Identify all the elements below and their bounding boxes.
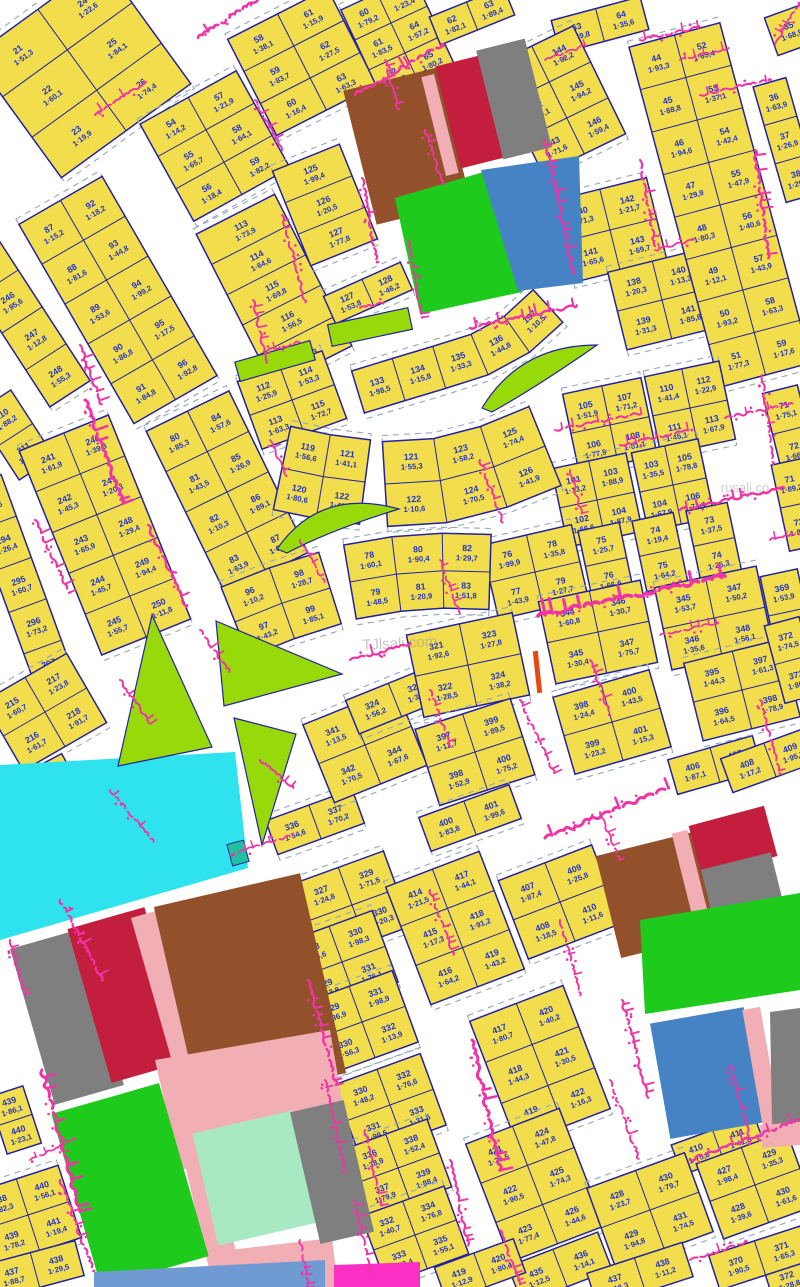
svg-text:81: 81 (415, 581, 426, 592)
svg-text:1·29,7: 1·29,7 (456, 553, 478, 563)
svg-text:121: 121 (403, 451, 418, 462)
svg-text:1·90,4: 1·90,4 (407, 554, 430, 565)
svg-text:1·10,6: 1·10,6 (403, 504, 425, 514)
svg-text:122: 122 (406, 494, 421, 505)
svg-text:1·20,9: 1·20,9 (410, 591, 432, 602)
svg-text:80: 80 (413, 544, 424, 555)
svg-text:83: 83 (461, 580, 471, 590)
svg-text:72: 72 (793, 516, 800, 528)
svg-text:82: 82 (462, 543, 472, 553)
svg-text:1·55,3: 1·55,3 (401, 461, 423, 471)
